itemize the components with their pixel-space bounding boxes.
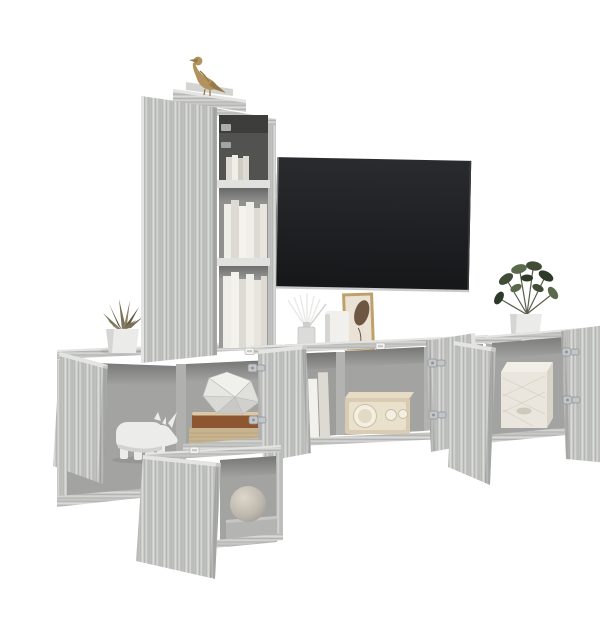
tall-open-door [141, 96, 217, 363]
door-edge-shadow [212, 106, 217, 356]
tall-mid-shadow [219, 188, 268, 202]
product-photo-tv-wall-set [40, 16, 600, 616]
hinge-icon [221, 124, 231, 131]
radio-speaker-inner [358, 409, 372, 423]
wall-bracket-icon [245, 348, 254, 355]
tall-right-side-panel [268, 120, 276, 352]
right-cabinet-right-door [561, 321, 600, 466]
scene-canvas [40, 16, 600, 616]
hinge-icon [221, 142, 231, 148]
hinge-icon [563, 396, 580, 404]
door-front-edge [141, 96, 144, 363]
round-vase [230, 486, 266, 522]
bottom-cube-right-side [276, 456, 283, 536]
shelf-board [217, 180, 270, 188]
basket-handle [517, 408, 532, 415]
hinge-icon [249, 416, 266, 424]
flat-screen-tv [275, 157, 471, 292]
wall-bracket-icon [190, 447, 199, 454]
bench-left-door [258, 345, 311, 462]
woven-basket [501, 362, 553, 428]
shelf-board [217, 258, 270, 266]
tv-screen [275, 157, 471, 292]
hinge-icon [248, 364, 265, 372]
radio-knob [399, 410, 408, 419]
radio-knob [386, 410, 397, 421]
books-row [224, 200, 267, 258]
bottom-cube-open-door [136, 455, 221, 579]
retro-radio [345, 392, 414, 434]
hinge-icon [429, 411, 446, 419]
bench-divider [336, 352, 345, 435]
small-books [226, 155, 249, 181]
hinge-icon [428, 359, 445, 367]
books-row [223, 272, 267, 348]
right-cabinet-left-door [448, 341, 496, 485]
cube-open-door [53, 352, 108, 484]
wall-bracket-icon [376, 343, 385, 350]
hinge-icon [562, 348, 579, 356]
